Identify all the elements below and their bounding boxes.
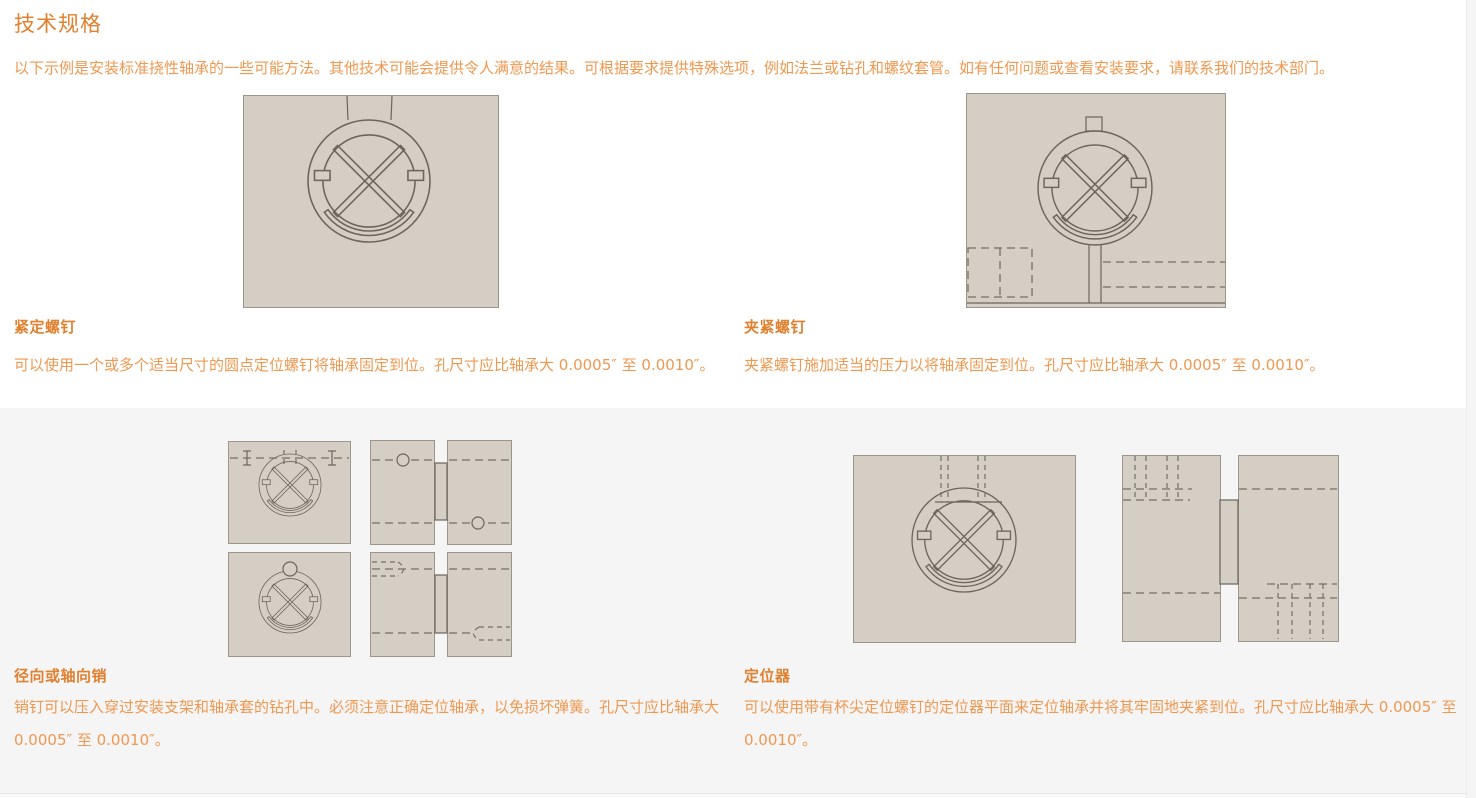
keyway-tab [1086, 117, 1102, 131]
shaft [1220, 500, 1238, 584]
section-body-set-screw: 可以使用一个或多个适当尺寸的圆点定位螺钉将轴承固定到位。孔尺寸应比轴承大 0.0… [14, 350, 730, 380]
footer-strip [0, 793, 1476, 798]
section-heading-set-screw: 紧定螺钉 [14, 316, 76, 337]
radial-axial-pin-diagram [228, 437, 513, 658]
section-body-clamp-screw: 夹紧螺钉施加适当的压力以将轴承固定到位。孔尺寸应比轴承大 0.0005″ 至 0… [744, 350, 1462, 380]
set-screw-diagram [243, 95, 499, 308]
section-body-radial-axial-pin: 销钉可以压入穿过安装支架和轴承套的钻孔中。必须注意正确定位轴承，以免损坏弹簧。孔… [14, 691, 730, 757]
shaft [435, 575, 447, 633]
section-heading-locator: 定位器 [744, 665, 791, 686]
axial-pin [283, 562, 297, 576]
radial-pin [472, 517, 484, 529]
clamp-screw-diagram [966, 93, 1226, 308]
page-background: { "page": { "title": "技术规格", "intro": "以… [0, 0, 1476, 798]
scrollbar-track[interactable] [1466, 0, 1476, 798]
section-heading-radial-axial-pin: 径向或轴向销 [14, 665, 107, 686]
radial-pin [397, 454, 409, 466]
page-title: 技术规格 [14, 8, 102, 38]
shaft [435, 463, 447, 520]
locator-diagram [853, 455, 1343, 643]
section-body-locator: 可以使用带有杯尖定位螺钉的定位器平面来定位轴承并将其牢固地夹紧到位。孔尺寸应比轴… [744, 691, 1462, 757]
section-heading-clamp-screw: 夹紧螺钉 [744, 316, 806, 337]
intro-paragraph: 以下示例是安装标准挠性轴承的一些可能方法。其他技术可能会提供令人满意的结果。可根… [14, 57, 1414, 78]
